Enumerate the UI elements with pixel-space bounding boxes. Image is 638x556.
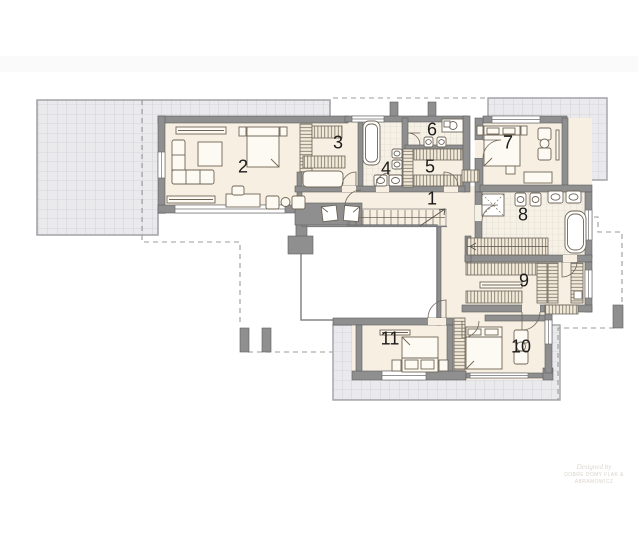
designer-watermark: Designed by DOBRE DOMY FLAK & ABRAMOWICZ	[551, 463, 637, 486]
nightstand	[477, 126, 483, 135]
bidet	[530, 193, 541, 206]
room-label-9: 9	[519, 271, 529, 292]
bed-room11	[402, 337, 438, 372]
watermark-script-line: Designed by	[551, 463, 637, 472]
desk	[524, 172, 552, 183]
watermark-studio-line: DOBRE DOMY FLAK & ABRAMOWICZ	[551, 472, 637, 486]
nightstand	[280, 127, 287, 136]
room-label-4: 4	[381, 159, 391, 180]
pillar	[613, 305, 623, 328]
room-label-6: 6	[427, 120, 437, 141]
wardrobe	[403, 149, 413, 187]
wardrobe	[545, 305, 578, 314]
stairwell-void	[288, 218, 437, 320]
wardrobe	[414, 149, 462, 160]
toilet	[392, 149, 402, 158]
low-shelf	[167, 196, 215, 203]
side-table	[506, 166, 515, 174]
floor-plan-drawing	[0, 0, 638, 556]
room-label-1: 1	[427, 189, 437, 210]
laundry-basket	[321, 205, 338, 222]
sink	[566, 191, 581, 203]
room-label-10: 10	[511, 337, 531, 358]
wardrobe	[548, 263, 558, 303]
radiator	[556, 130, 559, 160]
bathtub-room8	[565, 211, 586, 253]
small-cabinet	[574, 291, 582, 299]
wardrobe	[466, 291, 522, 303]
window	[545, 320, 552, 344]
coffee-table	[198, 142, 222, 166]
chimney-block	[288, 236, 313, 254]
chairs-and-table	[538, 128, 551, 160]
room-label-7: 7	[503, 133, 513, 154]
bed-room10	[466, 327, 502, 369]
bench-ottoman	[303, 171, 343, 187]
room-label-5: 5	[425, 157, 435, 178]
wardrobe	[537, 263, 547, 303]
nightstand	[392, 360, 401, 371]
washbasin-cabinet	[442, 119, 463, 132]
shelf-room9	[480, 282, 522, 288]
window	[585, 270, 592, 298]
window	[158, 152, 165, 178]
pillar	[240, 328, 249, 352]
room-label-3: 3	[333, 133, 343, 154]
room-label-2: 2	[238, 157, 248, 178]
bidet	[392, 160, 402, 169]
room-label-11: 11	[381, 329, 400, 350]
window	[470, 373, 528, 378]
bidet	[437, 137, 446, 147]
floor-plan-page: 1 2 3 4 5 6 7 8 9 10 11 Designed by DOBR…	[0, 0, 638, 556]
chimney-top-2	[428, 102, 436, 118]
room-label-8: 8	[518, 205, 528, 226]
nightstand	[239, 127, 246, 136]
staircase-lower-flight	[467, 238, 548, 255]
wardrobe	[303, 156, 345, 168]
chimney-top-1	[390, 102, 398, 118]
laundry-basket	[343, 205, 359, 221]
window	[492, 116, 540, 123]
wardrobe	[462, 170, 479, 182]
wardrobe	[454, 318, 465, 370]
pillar	[262, 328, 271, 352]
bed-room2	[247, 127, 279, 167]
nightstand	[439, 360, 448, 371]
wall-shelf	[176, 127, 226, 134]
sink	[548, 191, 563, 203]
nightstand	[521, 126, 527, 135]
